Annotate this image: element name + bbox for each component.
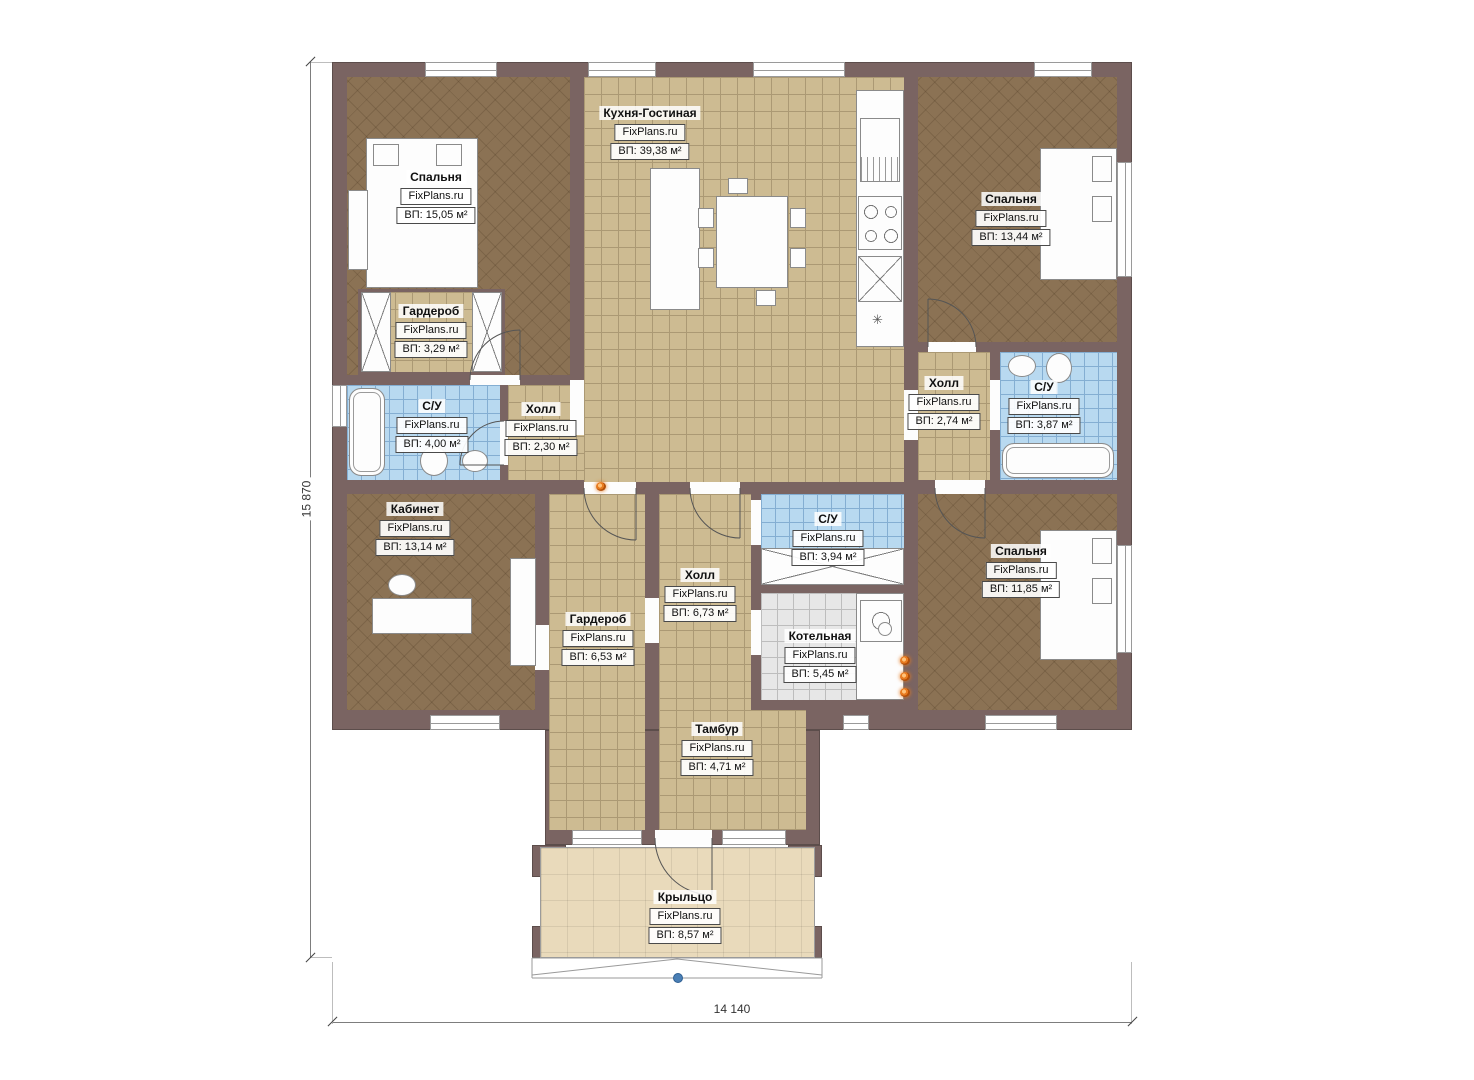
wardrobe-shelf — [361, 292, 391, 372]
watermark: FixPlans.ru — [505, 420, 576, 437]
room-area: ВП: 3,29 м² — [394, 341, 467, 358]
watermark: FixPlans.ru — [681, 740, 752, 757]
watermark: FixPlans.ru — [396, 417, 467, 434]
room-area: ВП: 4,71 м² — [680, 759, 753, 776]
room-label-wardrobe-bottom: Гардероб FixPlans.ru ВП: 6,53 м² — [561, 610, 634, 666]
dimension-height-label: 15 870 — [299, 478, 313, 521]
dimension-line-horizontal — [332, 1022, 1132, 1023]
sink-unit — [858, 256, 902, 302]
room-label-bathroom-center: С/У FixPlans.ru ВП: 3,94 м² — [791, 510, 864, 566]
room-area: ВП: 3,94 м² — [791, 549, 864, 566]
room-area: ВП: 8,57 м² — [648, 927, 721, 944]
bathtub — [349, 388, 385, 476]
stove — [858, 196, 902, 250]
desk — [372, 598, 472, 634]
chair — [728, 178, 748, 194]
room-name: Котельная — [785, 629, 856, 643]
window — [1117, 545, 1132, 653]
window — [572, 830, 642, 845]
room-label-office: Кабинет FixPlans.ru ВП: 13,14 м² — [375, 500, 454, 556]
porch-center-marker — [673, 973, 683, 983]
room-area: ВП: 39,38 м² — [610, 143, 689, 160]
room-label-hall-center: Холл FixPlans.ru ВП: 6,73 м² — [663, 566, 736, 622]
sofa — [510, 558, 536, 666]
room-name: С/У — [814, 512, 841, 526]
pillow — [373, 144, 399, 166]
door-opening — [690, 482, 740, 494]
room-name: Холл — [522, 402, 560, 416]
room-area: ВП: 3,87 м² — [1007, 417, 1080, 434]
watermark: FixPlans.ru — [975, 210, 1046, 227]
washbasin — [1008, 355, 1036, 377]
window — [1117, 162, 1132, 277]
room-name: С/У — [418, 399, 445, 413]
room-label-hall-small: Холл FixPlans.ru ВП: 2,30 м² — [504, 400, 577, 456]
window — [332, 385, 347, 427]
room-area: ВП: 13,14 м² — [375, 539, 454, 556]
room-name: Гардероб — [399, 304, 464, 318]
door-opening — [751, 610, 761, 655]
office-chair — [388, 574, 416, 596]
room-area: ВП: 6,53 м² — [561, 649, 634, 666]
room-label-bedroom-topright: Спальня FixPlans.ru ВП: 13,44 м² — [971, 190, 1050, 246]
room-area: ВП: 2,74 м² — [907, 413, 980, 430]
room-area: ВП: 2,30 м² — [504, 439, 577, 456]
room-label-wardrobe-topleft: Гардероб FixPlans.ru ВП: 3,29 м² — [394, 302, 467, 358]
window — [588, 62, 656, 77]
room-label-bathroom-left: С/У FixPlans.ru ВП: 4,00 м² — [395, 397, 468, 453]
room-name: Холл — [681, 568, 719, 582]
extension-line — [1131, 962, 1132, 1024]
watermark: FixPlans.ru — [614, 124, 685, 141]
door-opening — [928, 342, 976, 352]
door-opening — [584, 482, 636, 494]
door-opening — [535, 625, 549, 670]
door-opening — [470, 375, 520, 385]
room-name: Спальня — [991, 544, 1051, 558]
chair — [790, 248, 806, 268]
watermark: FixPlans.ru — [664, 586, 735, 603]
room-label-boiler: Котельная FixPlans.ru ВП: 5,45 м² — [783, 627, 856, 683]
room-area: ВП: 6,73 м² — [663, 605, 736, 622]
room-name: С/У — [1030, 380, 1057, 394]
watermark: FixPlans.ru — [985, 562, 1056, 579]
watermark: FixPlans.ru — [395, 322, 466, 339]
room-name: Кабинет — [387, 502, 444, 516]
room-area: ВП: 5,45 м² — [783, 666, 856, 683]
room-label-vestibule: Тамбур FixPlans.ru ВП: 4,71 м² — [680, 720, 753, 776]
door-opening — [645, 598, 659, 643]
door-opening — [751, 500, 761, 545]
room-area: ВП: 13,44 м² — [971, 229, 1050, 246]
extension-line — [311, 957, 332, 958]
room-label-hall-right: Холл FixPlans.ru ВП: 2,74 м² — [907, 374, 980, 430]
room-name: Кухня-Гостиная — [599, 106, 700, 120]
room-label-kitchen-living: Кухня-Гостиная FixPlans.ru ВП: 39,38 м² — [599, 104, 700, 160]
watermark: FixPlans.ru — [379, 520, 450, 537]
room-label-bedroom-bottom: Спальня FixPlans.ru ВП: 11,85 м² — [982, 542, 1060, 598]
chair — [698, 248, 714, 268]
dimension-width-label: 14 140 — [711, 1002, 754, 1016]
extension-line — [332, 962, 333, 1024]
asterisk-marker: ✳ — [872, 312, 883, 328]
window — [753, 62, 845, 77]
boiler-unit — [878, 622, 892, 636]
pillow — [1092, 538, 1112, 564]
outlet-marker — [900, 656, 910, 665]
washing-machine — [860, 600, 902, 642]
chair — [756, 290, 776, 306]
entry-door-opening — [655, 830, 712, 845]
window — [985, 715, 1057, 730]
room-label-bathroom-right: С/У FixPlans.ru ВП: 3,87 м² — [1007, 378, 1080, 434]
wardrobe-shelf — [472, 292, 502, 372]
watermark: FixPlans.ru — [908, 394, 979, 411]
chair — [790, 208, 806, 228]
washbasin — [462, 450, 488, 472]
fridge — [860, 118, 900, 182]
room-name: Спальня — [406, 170, 466, 184]
floor-plan-canvas: ✳ — [0, 0, 1474, 1080]
pillow — [436, 144, 462, 166]
room-name: Гардероб — [566, 612, 631, 626]
room-area: ВП: 4,00 м² — [395, 436, 468, 453]
room-label-porch: Крыльцо FixPlans.ru ВП: 8,57 м² — [648, 888, 721, 944]
pillow — [1092, 196, 1112, 222]
door-opening — [935, 480, 985, 494]
window — [722, 830, 786, 845]
outlet-marker — [900, 688, 910, 697]
outlet-marker — [900, 672, 910, 681]
room-area: ВП: 15,05 м² — [396, 207, 475, 224]
room-area: ВП: 11,85 м² — [982, 581, 1060, 598]
watermark: FixPlans.ru — [562, 630, 633, 647]
window — [843, 715, 869, 730]
closet — [348, 190, 368, 270]
watermark: FixPlans.ru — [784, 647, 855, 664]
sofa — [650, 168, 700, 310]
room-name: Тамбур — [691, 722, 743, 736]
watermark: FixPlans.ru — [400, 188, 471, 205]
dining-table — [716, 196, 788, 288]
room-label-bedroom-topleft: Спальня FixPlans.ru ВП: 15,05 м² — [396, 168, 475, 224]
window — [425, 62, 497, 77]
bathtub — [1002, 443, 1114, 478]
room-name: Спальня — [981, 192, 1041, 206]
pillow — [1092, 578, 1112, 604]
room-name: Крыльцо — [654, 890, 717, 904]
window — [430, 715, 500, 730]
door-opening — [990, 380, 1000, 430]
extension-line — [311, 62, 332, 63]
watermark: FixPlans.ru — [1008, 398, 1079, 415]
room-name: Холл — [925, 376, 963, 390]
watermark: FixPlans.ru — [792, 530, 863, 547]
pillow — [1092, 156, 1112, 182]
watermark: FixPlans.ru — [649, 908, 720, 925]
outlet-marker — [596, 482, 606, 491]
window — [1034, 62, 1092, 77]
chair — [698, 208, 714, 228]
